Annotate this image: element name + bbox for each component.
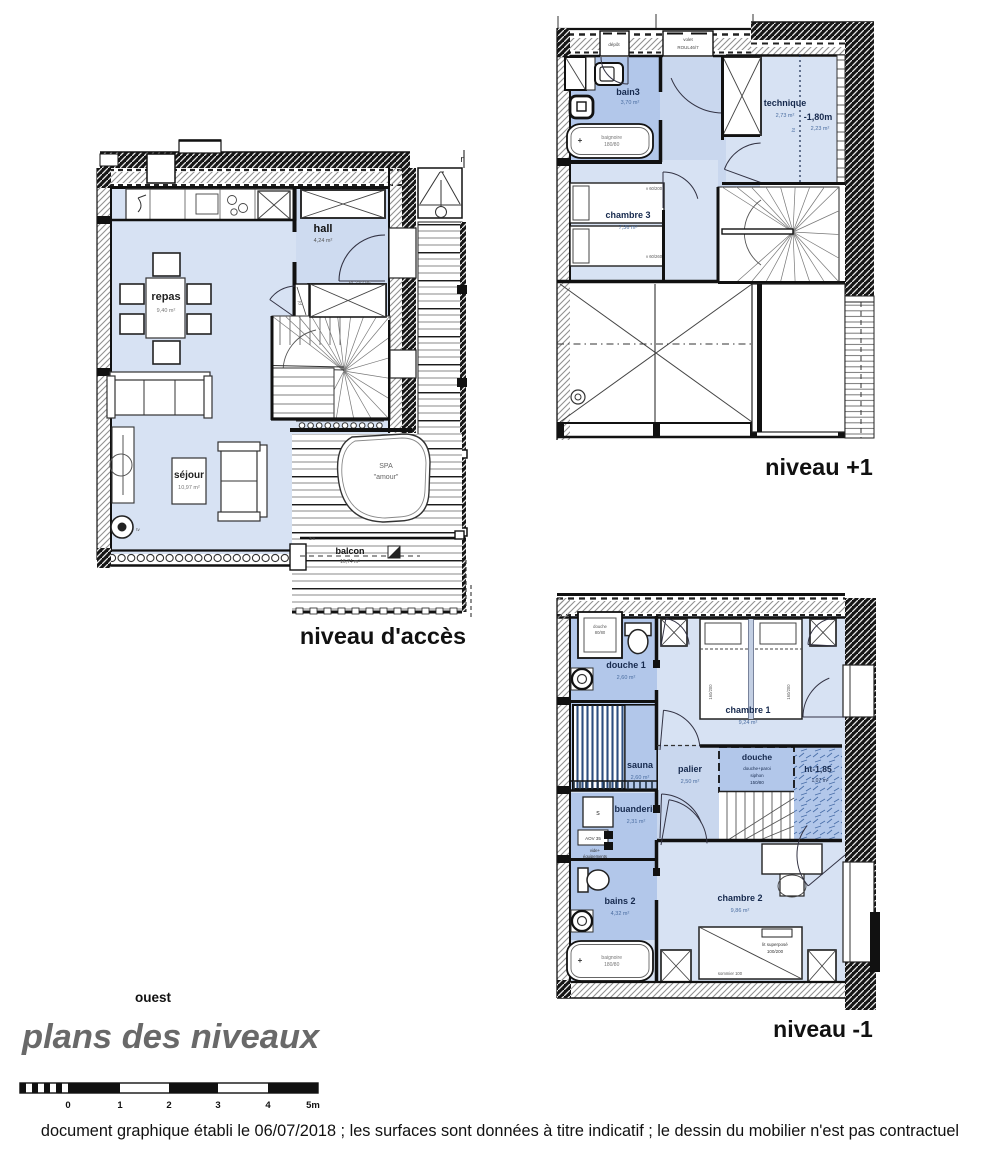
svg-text:+: + [578,956,583,965]
svg-text:douche+paroi: douche+paroi [743,766,770,771]
svg-text:180/80: 180/80 [604,142,620,148]
svg-text:vide+: vide+ [590,848,601,853]
svg-text:2,60 m²: 2,60 m² [631,775,650,781]
svg-text:s: s [596,810,600,817]
svg-text:palier: palier [678,764,703,774]
svg-text:-1,80m: -1,80m [804,112,833,122]
svg-text:chambre 2: chambre 2 [717,893,762,903]
svg-text:9,86 m²: 9,86 m² [731,908,750,914]
svg-text:7,36 m²: 7,36 m² [619,225,638,231]
svg-text:180/80: 180/80 [604,962,620,968]
svg-text:pl: pl [297,301,302,305]
svg-text:document graphique établi le 0: document graphique établi le 06/07/2018 … [41,1122,959,1140]
svg-text:9,40 m²: 9,40 m² [157,308,176,314]
svg-text:4: 4 [265,1100,271,1111]
svg-text:dépôt: dépôt [608,42,620,47]
svg-text:volet: volet [683,37,693,42]
svg-text:niveau +1: niveau +1 [765,454,873,480]
svg-text:douche: douche [742,752,772,762]
svg-text:100/200: 100/200 [767,949,784,954]
svg-text:1: 1 [117,1100,123,1111]
svg-text:v 60/260: v 60/260 [646,254,663,259]
svg-text:SPA: SPA [379,463,393,470]
svg-text:buanderie: buanderie [614,804,657,814]
svg-text:siphon: siphon [750,773,764,778]
svg-text:3: 3 [215,1100,220,1111]
svg-text:1,07 m²: 1,07 m² [812,778,829,784]
svg-text:ROUL46/7: ROUL46/7 [677,45,699,50]
svg-text:chambre 3: chambre 3 [605,210,650,220]
svg-text:2: 2 [166,1100,171,1111]
svg-text:4,24 m²: 4,24 m² [314,238,333,244]
svg-text:niveau -1: niveau -1 [773,1016,873,1042]
svg-text:baignoire: baignoire [601,955,622,961]
svg-text:160/200: 160/200 [708,684,713,700]
svg-text:douche: douche [593,624,607,629]
svg-text:2,50 m²: 2,50 m² [681,779,700,785]
svg-text:160/200: 160/200 [786,684,791,700]
svg-text:séjour: séjour [174,470,204,481]
svg-text:2,73 m²: 2,73 m² [776,113,795,119]
svg-text:r: r [461,154,464,164]
svg-text:sommier 100: sommier 100 [718,971,743,976]
svg-text:3,70 m²: 3,70 m² [621,100,640,106]
svg-text:bains 2: bains 2 [604,896,635,906]
svg-text:+: + [578,136,583,145]
svg-text:sauna: sauna [627,760,654,770]
svg-text:AOV 35: AOV 35 [585,836,601,841]
svg-text:2,31 m²: 2,31 m² [627,819,646,825]
svg-text:10,97 m²: 10,97 m² [178,485,200,491]
svg-text:5m: 5m [306,1100,320,1111]
svg-text:"amour": "amour" [374,474,399,481]
svg-text:150/80: 150/80 [750,780,764,785]
svg-text:v 60/200: v 60/200 [646,186,663,191]
svg-text:plans des niveaux: plans des niveaux [21,1018,321,1056]
svg-text:16,74 m²: 16,74 m² [340,559,360,565]
svg-text:4,32 m²: 4,32 m² [611,911,630,917]
svg-text:douche 1: douche 1 [606,660,646,670]
svg-text:hall: hall [314,223,333,235]
svg-text:9,24 m²: 9,24 m² [739,720,758,726]
svg-text:2,60 m²: 2,60 m² [617,675,636,681]
svg-text:balcon: balcon [335,546,364,556]
svg-text:niveau d'accès: niveau d'accès [300,623,466,649]
svg-text:baignoire: baignoire [601,135,622,141]
svg-text:repas: repas [151,291,180,303]
svg-text:ht-1,85: ht-1,85 [804,764,832,774]
svg-text:0: 0 [65,1100,70,1111]
svg-text:80/80: 80/80 [595,630,606,635]
svg-text:ouest: ouest [135,990,172,1005]
svg-text:3m: 3m [309,536,316,541]
svg-text:chambre 1: chambre 1 [725,705,770,715]
svg-text:bain3: bain3 [616,87,640,97]
svg-text:2,23 m²: 2,23 m² [811,126,830,132]
svg-text:lit superposé: lit superposé [762,942,788,947]
